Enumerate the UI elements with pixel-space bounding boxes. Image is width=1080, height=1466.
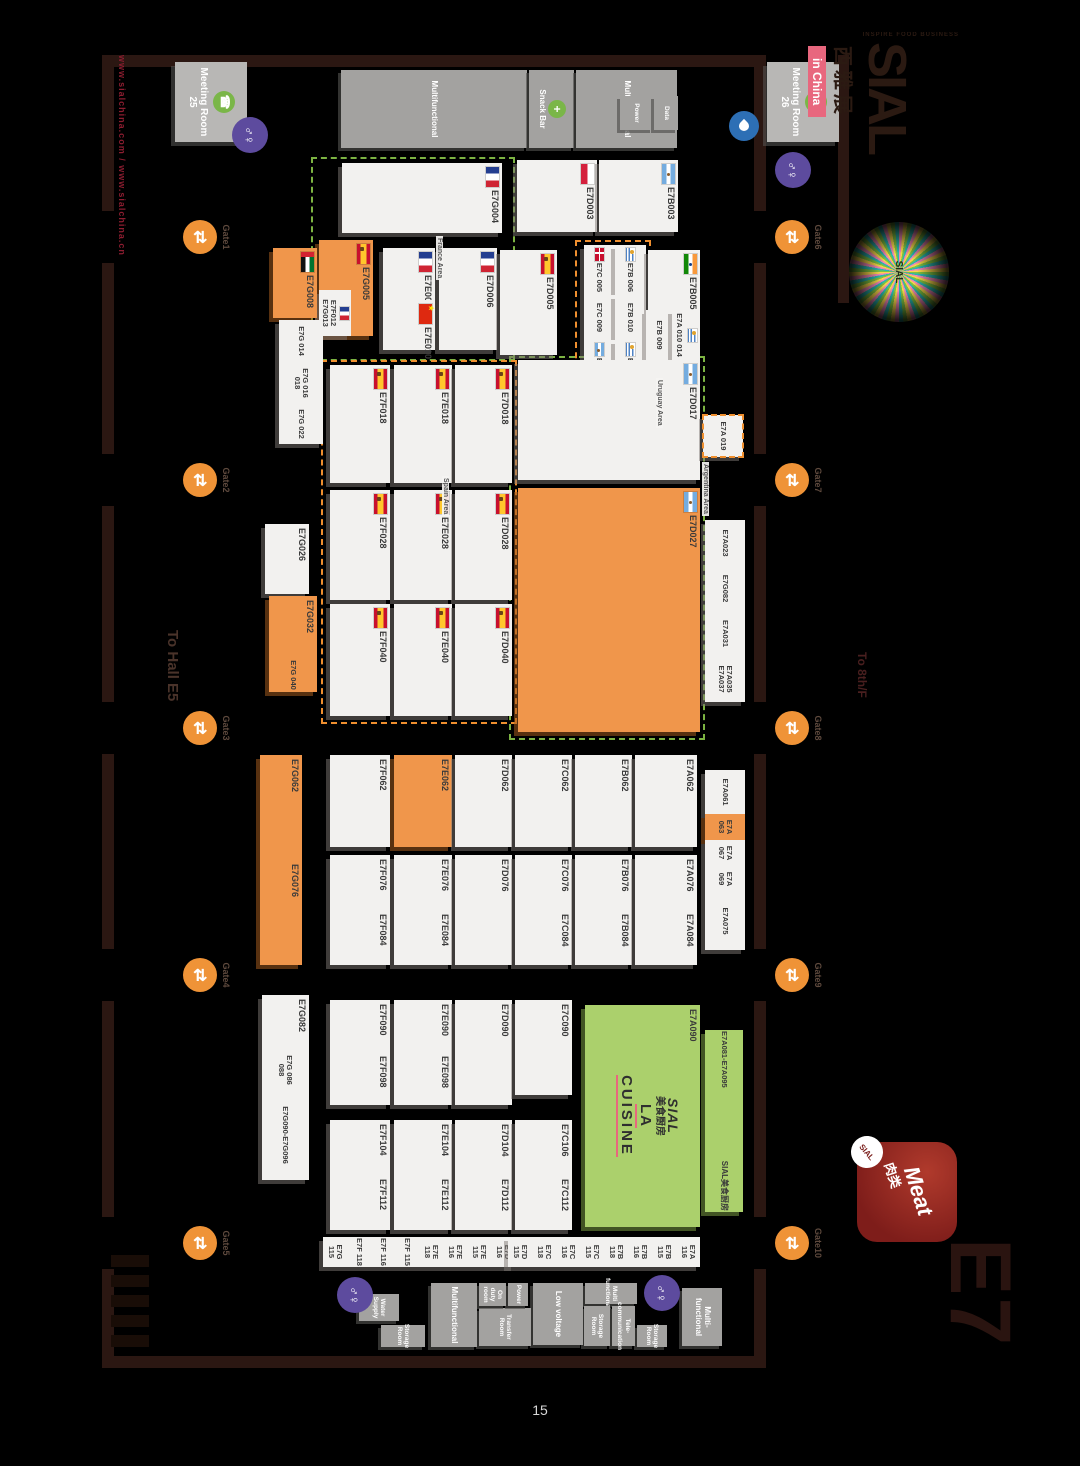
booth-label: E7C 118 (536, 1238, 552, 1266)
booth-e7d027: E7D027 (518, 488, 700, 732)
snack-bar-icon: + (548, 100, 566, 118)
booth-label: E7E 115 (471, 1238, 487, 1266)
to-hall-label: To Hall E5 (164, 630, 181, 701)
booth-e7f040: E7F040 (330, 604, 390, 716)
booth-e7b-010: E7B 010 (615, 295, 646, 340)
facility-multifunctional: Multifunctional (431, 1283, 477, 1347)
booth-label: E7F098 (378, 1056, 387, 1088)
booth-e7a-069: E7A 069 (705, 866, 745, 892)
booth-label: E7A081-E7A095 (720, 1031, 728, 1088)
booth-label: E7F 115 (403, 1238, 411, 1266)
booth-e7g-115: E7G 115 (323, 1237, 347, 1267)
meat-sector-logo: Meat肉类SIAL (857, 1142, 957, 1242)
facility-label: Storage Room (590, 1308, 604, 1344)
booth-e7c-009: E7C 009 (584, 295, 615, 340)
booth-e7a-067: E7A 067 (705, 840, 745, 866)
booth-label: E7E040 (440, 631, 449, 663)
france-flag-icon (340, 307, 349, 320)
hall-wall (102, 263, 114, 454)
booth-e7f112: E7F112 (330, 1175, 390, 1230)
facility-tele-communication: Tele- communication (612, 1306, 635, 1346)
booth-e7f104: E7F104 (330, 1120, 390, 1175)
booth-label: E7D028 (500, 517, 509, 550)
booth-label: E7C112 (560, 1179, 569, 1211)
booth-label: E7F 116 (379, 1238, 387, 1266)
denmark-flag-icon (595, 248, 604, 261)
booth-label: E7G005 (361, 267, 370, 300)
facility-storage-room: Storage Room (637, 1325, 667, 1347)
booth-label: E7G082 (297, 999, 306, 1032)
facility-storage-room: Storage Room (381, 1325, 425, 1347)
facility-label: Transfer Room (498, 1310, 512, 1344)
booth-e7a035-e7a037: E7A035 E7A037 (705, 656, 745, 702)
restroom-icon: ♂♀ (337, 1277, 373, 1313)
booth-label: E7G 086 088 (278, 1051, 294, 1089)
facility-label: On duty room (482, 1285, 503, 1304)
hall-wall (754, 506, 766, 702)
gate-label: Gate10 (813, 1219, 823, 1267)
booth-e7d112: E7D112 (455, 1175, 512, 1230)
booth-e7e-118: E7E 118 (419, 1237, 443, 1267)
booth-label: E7E010 (423, 327, 432, 359)
booth-label: E7A061 (721, 778, 729, 805)
booth-label: E7A 010 014 (675, 313, 683, 357)
booth-label: E7A062 (685, 759, 694, 792)
sial-logo-row: INSPIRE FOOD BUSINESSSIAL (863, 32, 959, 217)
facility-label: Power (514, 1285, 521, 1305)
facility-multi-functional: Multi- functional (682, 1288, 722, 1346)
booth-label: E7A 116 (680, 1238, 696, 1266)
booth-e7g-014: E7G 014 (279, 320, 323, 362)
booth-label: E7D017 (688, 387, 697, 420)
in-china-badge: in China (808, 46, 826, 117)
uruguay-flag-icon (626, 343, 635, 356)
booth-label: E7C084 (560, 914, 569, 947)
booth-label: E7G004 (490, 190, 499, 223)
booth-e7e-115: E7E 115 (467, 1237, 491, 1267)
booth-e7c-115: E7C 115 (580, 1237, 604, 1267)
escalator-icon: ⇄ (183, 463, 217, 497)
meeting-room-label: Meeting Room 26 (779, 62, 801, 142)
poland-flag-icon (581, 164, 594, 184)
booth-e7f062: E7F062 (330, 755, 390, 847)
booth-e7b-006: E7B 006 (615, 245, 646, 295)
la-cuisine-line: SIAL (665, 1098, 680, 1134)
booth-e7b062: E7B062 (575, 755, 632, 847)
spain-flag-icon (357, 244, 370, 264)
booth-label: E7G 022 (297, 409, 305, 439)
booth-label: E7F090 (378, 1004, 387, 1036)
spain-flag-icon (436, 608, 449, 628)
booth-e7f012-e7g013: E7F012 E7G013 (319, 290, 351, 336)
spain-flag-icon (541, 254, 554, 274)
la-cuisine-line: 美食厨房 (654, 1096, 665, 1136)
france-flag-icon (419, 252, 432, 272)
booth-e7g-022: E7G 022 (279, 404, 323, 444)
facility-label: Multifunctional (430, 81, 439, 138)
booth-label: E7F062 (378, 759, 387, 791)
escalator-icon: ⇄ (183, 958, 217, 992)
booth-e7b003: E7B003 (599, 160, 678, 232)
hall-wall (754, 1001, 766, 1217)
escalator-icon: ⇄ (775, 463, 809, 497)
facility-data: Data (654, 96, 678, 130)
booth-label: E7A084 (685, 914, 694, 947)
restroom-icon: ♂♀ (644, 1275, 680, 1311)
booth-label: E7A 067 (717, 841, 733, 865)
france-flag-icon (481, 252, 494, 272)
booth-e7f098: E7F098 (330, 1052, 390, 1105)
booth-label: E7D018 (500, 392, 509, 425)
booth-label: E7A035 E7A037 (717, 657, 733, 701)
booth-e7g008: E7G008 (273, 248, 317, 318)
stairs-icon (111, 1315, 149, 1327)
booth-label: E7D104 (500, 1124, 509, 1157)
booth-label: E7E062 (440, 759, 449, 791)
booth-label: E7B005 (688, 277, 697, 310)
booth-e7g032: E7G032 (269, 596, 317, 658)
booth-e7g062: E7G062 (260, 755, 302, 860)
escalator-icon: ⇄ (775, 711, 809, 745)
booth-e7f-116: E7F 116 (371, 1237, 395, 1267)
area-label: Argentina Area (702, 462, 709, 516)
booth-e7e010: E7E010 (383, 300, 435, 350)
facility-label: Multifunctional (450, 1287, 459, 1344)
booth-label: E7D027 (688, 515, 697, 548)
hall-wall (102, 55, 114, 211)
booth-label: E7F104 (378, 1124, 387, 1156)
booth-e7d005: E7D005 (500, 250, 557, 355)
booth-e7f018: E7F018 (330, 365, 390, 483)
booth-e7b076: E7B076 (575, 855, 632, 910)
booth-e7g-086-088: E7G 086 088 (262, 1050, 309, 1090)
booth-label: E7F112 (378, 1179, 387, 1210)
booth-label: E7C 115 (584, 1238, 600, 1266)
booth-e7f028: E7F028 (330, 490, 390, 600)
booth-label: E7F028 (378, 517, 387, 549)
restroom-icon: ♂♀ (232, 117, 268, 153)
booth-e7a081-e7a095: E7A081-E7A095SIAL美食厨房 (705, 1030, 743, 1212)
booth-label: E7B076 (620, 859, 629, 892)
la-cuisine-label: SIAL美食厨房LACUISINE (616, 1005, 680, 1227)
spain-flag-icon (436, 369, 449, 389)
booth-e7g026: E7G026 (265, 524, 309, 594)
booth-e7a062: E7A062 (635, 755, 697, 847)
gate-label: Gate9 (813, 951, 823, 999)
booth-label: E7A076 (685, 859, 694, 892)
restroom-icon: ♂♀ (775, 152, 811, 188)
booth-label: E7C076 (560, 859, 569, 892)
booth-e7d104: E7D104 (455, 1120, 512, 1175)
booth-label: E7E098 (440, 1056, 449, 1088)
facility-label: Data (662, 106, 669, 120)
meeting-room-label: Meeting Room 25 (187, 62, 209, 142)
escalator-icon: ⇄ (775, 220, 809, 254)
facility-power: Power (620, 96, 653, 130)
gate-label: Gate2 (221, 456, 231, 504)
hall-wall (754, 263, 766, 454)
spain-flag-icon (374, 369, 387, 389)
booth-e7d062: E7D062 (455, 755, 512, 847)
booth-e7b005: E7B005 (648, 250, 700, 310)
la-cuisine-line: LA (635, 1104, 653, 1128)
booth-e7a084: E7A084 (635, 910, 697, 965)
booth-e7c084: E7C084 (515, 910, 572, 965)
uruguay-flag-icon (626, 248, 635, 261)
la-cuisine-line: CUISINE (616, 1075, 634, 1157)
page-number: 15 (0, 1402, 1080, 1418)
spain-flag-icon (496, 494, 509, 514)
gate-label: Gate8 (813, 704, 823, 752)
uae-flag-icon (301, 252, 314, 272)
booth-e7d-115: E7D 115 (508, 1237, 532, 1267)
booth-label: E7C 116 (560, 1238, 576, 1266)
map-stage: France AreaSpain AreaArgentina AreaUrugu… (95, 0, 1015, 1440)
booth-e7e112: E7E112 (394, 1175, 452, 1230)
booth-e7c090: E7C090 (515, 1000, 572, 1095)
booth-label: E7E090 (440, 1004, 449, 1036)
booth-label: E7A023 (721, 529, 729, 556)
argentina-flag-icon (684, 492, 697, 512)
india-flag-icon (684, 254, 697, 274)
booth-e7g082: E7G082 (262, 995, 309, 1050)
gate-label: Gate5 (221, 1219, 231, 1267)
booth-label: E7B 116 (632, 1238, 648, 1266)
facility-low-voltage: Low voltage (533, 1283, 583, 1345)
booth-e7d040: E7D040 (455, 604, 512, 716)
booth-e7e062: E7E062 (394, 755, 452, 847)
booth-label: E7A031 (721, 620, 729, 647)
booth-e7a061: E7A061 (705, 770, 745, 814)
booth-e7a075: E7A075 (705, 892, 745, 950)
escalator-icon: ⇄ (183, 711, 217, 745)
booth-e7g076: E7G076 (260, 860, 302, 965)
escalator-icon: ⇄ (775, 1226, 809, 1260)
booth-e7a-116: E7A 116 (676, 1237, 700, 1267)
booth-e7g-040: E7G 040 (269, 658, 317, 692)
gate-label: Gate7 (813, 456, 823, 504)
facility-label: Storage Room (396, 1324, 410, 1348)
uruguay-flag-icon (688, 329, 697, 342)
booth-e7e090: E7E090 (394, 1000, 452, 1052)
facility-storage-room: Storage Room (584, 1306, 610, 1346)
booth-e7c112: E7C112 (515, 1175, 572, 1230)
booth-label: E7B 118 (608, 1238, 624, 1266)
gate-label: Gate6 (813, 213, 823, 261)
booth-label: E7B 009 (655, 320, 663, 349)
booth-label: E7F 118 (355, 1238, 363, 1266)
booth-e7d006: E7D006 (439, 248, 497, 350)
booth-e7b-116: E7B 116 (628, 1237, 652, 1267)
facility-multifunctional: Multifunctional (341, 70, 527, 148)
booth-e7b-009: E7B 009 (646, 310, 672, 360)
booth-label: E7C 005 (596, 263, 604, 292)
facility-label: Snack Bar (537, 89, 546, 128)
stairs-icon (111, 1295, 149, 1307)
booth-e7c-116: E7C 116 (556, 1237, 580, 1267)
area-label: Uruguay Area (656, 378, 663, 428)
booth-e7e-116: E7E 116 (443, 1237, 467, 1267)
booth-label: E7D062 (500, 759, 509, 792)
booth-label: E7E084 (440, 914, 449, 946)
booth-label: E7B003 (666, 187, 675, 220)
booth-label: E7B 010 (627, 303, 635, 332)
booth-label: E7C090 (560, 1004, 569, 1037)
booth-e7a-019: E7A 019 (703, 415, 743, 457)
facility-label: Power (633, 103, 640, 123)
service-icon: ☎ (213, 91, 235, 113)
booth-e7d003: E7D003 (517, 160, 597, 232)
gate-label: Gate4 (221, 951, 231, 999)
booth-label: E7G 115 (327, 1238, 343, 1266)
hall-wall (754, 754, 766, 949)
booth-label: E7D 115 (512, 1238, 528, 1266)
booth-e7c076: E7C076 (515, 855, 572, 910)
area-label: Spain Area (442, 476, 449, 516)
booth-label: E7A 069 (717, 867, 733, 891)
booth-label: E7G032 (305, 600, 314, 633)
booth-e7e018: E7E018 (394, 365, 452, 483)
booth-label: E7B084 (620, 914, 629, 947)
facility-power: Power (508, 1283, 528, 1306)
booth-e7a-063: E7A 063 (705, 814, 745, 840)
hall-wall (102, 754, 114, 949)
gate-label: Gate1 (221, 213, 231, 261)
booth-e7d017: E7D017 (518, 360, 700, 480)
gate-label: Gate3 (221, 704, 231, 752)
website-text: www.sialchina.com / www.sialchina.cn (117, 55, 127, 256)
booth-label: E7G 014 (297, 326, 305, 356)
drinking-water-icon (729, 111, 759, 141)
booth-e7c-118: E7C 118 (532, 1237, 556, 1267)
booth-e7d028: E7D028 (455, 490, 512, 600)
booth-label: E7E 118 (423, 1238, 439, 1266)
area-label: France Area (436, 236, 443, 280)
booth-label: E7D040 (500, 631, 509, 664)
booth-e7b-115: E7B 115 (652, 1237, 676, 1267)
booth-label: E7A 019 (719, 422, 727, 451)
argentina-flag-icon (595, 343, 604, 356)
booth-label: E7G 016 018 (293, 363, 309, 403)
booth-e7f084: E7F084 (330, 910, 390, 965)
escalator-icon: ⇄ (183, 1226, 217, 1260)
booth-label: E7A090 (688, 1009, 697, 1042)
hall-number: E7 (930, 1238, 1029, 1347)
facility-label: Low voltage (554, 1291, 563, 1337)
escalator-icon: ⇄ (183, 220, 217, 254)
booth-label: E7D090 (500, 1004, 509, 1037)
booth-e7b-118: E7B 118 (604, 1237, 628, 1267)
booth-label: E7G062 (290, 759, 299, 792)
booth-label: E7D003 (585, 187, 594, 220)
booth-label: E7B 115 (656, 1238, 672, 1266)
hall-wall (102, 1356, 766, 1368)
booth-label: E7C 009 (596, 303, 604, 332)
facility-on-duty-room: On duty room (479, 1283, 506, 1306)
facility-label: Storage Room (645, 1324, 659, 1348)
booth-label: E7G 040 (289, 660, 297, 690)
booth-e7f-118: E7F 118 (347, 1237, 371, 1267)
facility-snack-bar: +Snack Bar (529, 70, 574, 148)
booth-label: E7E 116 (447, 1238, 463, 1266)
booth-e7a076: E7A076 (635, 855, 697, 910)
booth-e7g004: E7G004 (342, 163, 502, 233)
stairs-icon (111, 1275, 149, 1287)
booth-label: E7B 006 (627, 263, 635, 292)
spain-flag-icon (374, 608, 387, 628)
booth-label: E7G082 (721, 575, 729, 603)
booth-label: E7D006 (485, 275, 494, 308)
sial-wordmark: SIAL (863, 42, 909, 153)
booth-e7f090: E7F090 (330, 1000, 390, 1052)
booth-e7c-005: E7C 005 (584, 245, 615, 295)
booth-e7e104: E7E104 (394, 1120, 452, 1175)
booth-label: E7F084 (378, 914, 387, 946)
booth-label: E7F018 (378, 392, 387, 424)
booth-e7e006: E7E006 (383, 248, 435, 300)
sial-tagline-text: INSPIRE FOOD BUSINESS (863, 32, 959, 38)
sial-chinese-text: 西雅展 (830, 46, 859, 217)
booth-e7f076: E7F076 (330, 855, 390, 910)
facility-multi-functional: Multi functional (585, 1283, 637, 1304)
facility-label: Multi- functional (693, 1290, 711, 1344)
booth-e7g082: E7G082 (705, 566, 745, 611)
booth-e7d090: E7D090 (455, 1000, 512, 1105)
booth-e7a090: E7A090SIAL美食厨房LACUISINE (585, 1005, 700, 1227)
france-flag-icon (486, 167, 499, 187)
escalator-icon: ⇄ (775, 958, 809, 992)
spain-flag-icon (496, 608, 509, 628)
booth-label: E7G076 (290, 864, 299, 897)
booth-label: E7E076 (440, 859, 449, 891)
booth-e7e098: E7E098 (394, 1052, 452, 1105)
booth-e7e040: E7E040 (394, 604, 452, 716)
booth-label: E7C106 (560, 1124, 569, 1157)
booth-e7g-016-018: E7G 016 018 (279, 362, 323, 404)
booth-label: E7E028 (440, 517, 449, 549)
china-flag-icon (419, 304, 432, 324)
argentina-flag-icon (684, 364, 697, 384)
facility-label: Tele- communication (616, 1302, 630, 1350)
booth-label: E7E104 (440, 1124, 449, 1156)
booth-label: E7E112 (440, 1179, 449, 1211)
booth-label: E7B062 (620, 759, 629, 792)
booth-label: E7A075 (721, 907, 729, 934)
booth-e7g090-e7g096: E7G090-E7G096 (262, 1090, 309, 1180)
booth-e7a031: E7A031 (705, 611, 745, 656)
booth-e7d076: E7D076 (455, 855, 512, 965)
hall-wall (754, 1269, 766, 1356)
booth-label: E7A 063 (717, 815, 733, 839)
booth-label: E7G026 (297, 528, 306, 561)
booth-label: E7D112 (500, 1179, 509, 1211)
to-8f-label: To 8th/F (855, 652, 869, 698)
booth-label: E7D076 (500, 859, 509, 892)
booth-e7c106: E7C106 (515, 1120, 572, 1175)
starburst-graphic: SIAL (849, 222, 949, 322)
booth-label: E7C062 (560, 759, 569, 792)
booth-e7e076: E7E076 (394, 855, 452, 910)
booth-e7b084: E7B084 (575, 910, 632, 965)
booth-label: E7G008 (305, 275, 314, 308)
booth-label: E7F040 (378, 631, 387, 663)
booth-label: E7F076 (378, 859, 387, 891)
stairs-icon (111, 1335, 149, 1347)
booth-label: E7E018 (440, 392, 449, 424)
booth-label: E7D005 (545, 277, 554, 310)
stairs-icon (111, 1255, 149, 1267)
booth-e7f-115: E7F 115 (395, 1237, 419, 1267)
